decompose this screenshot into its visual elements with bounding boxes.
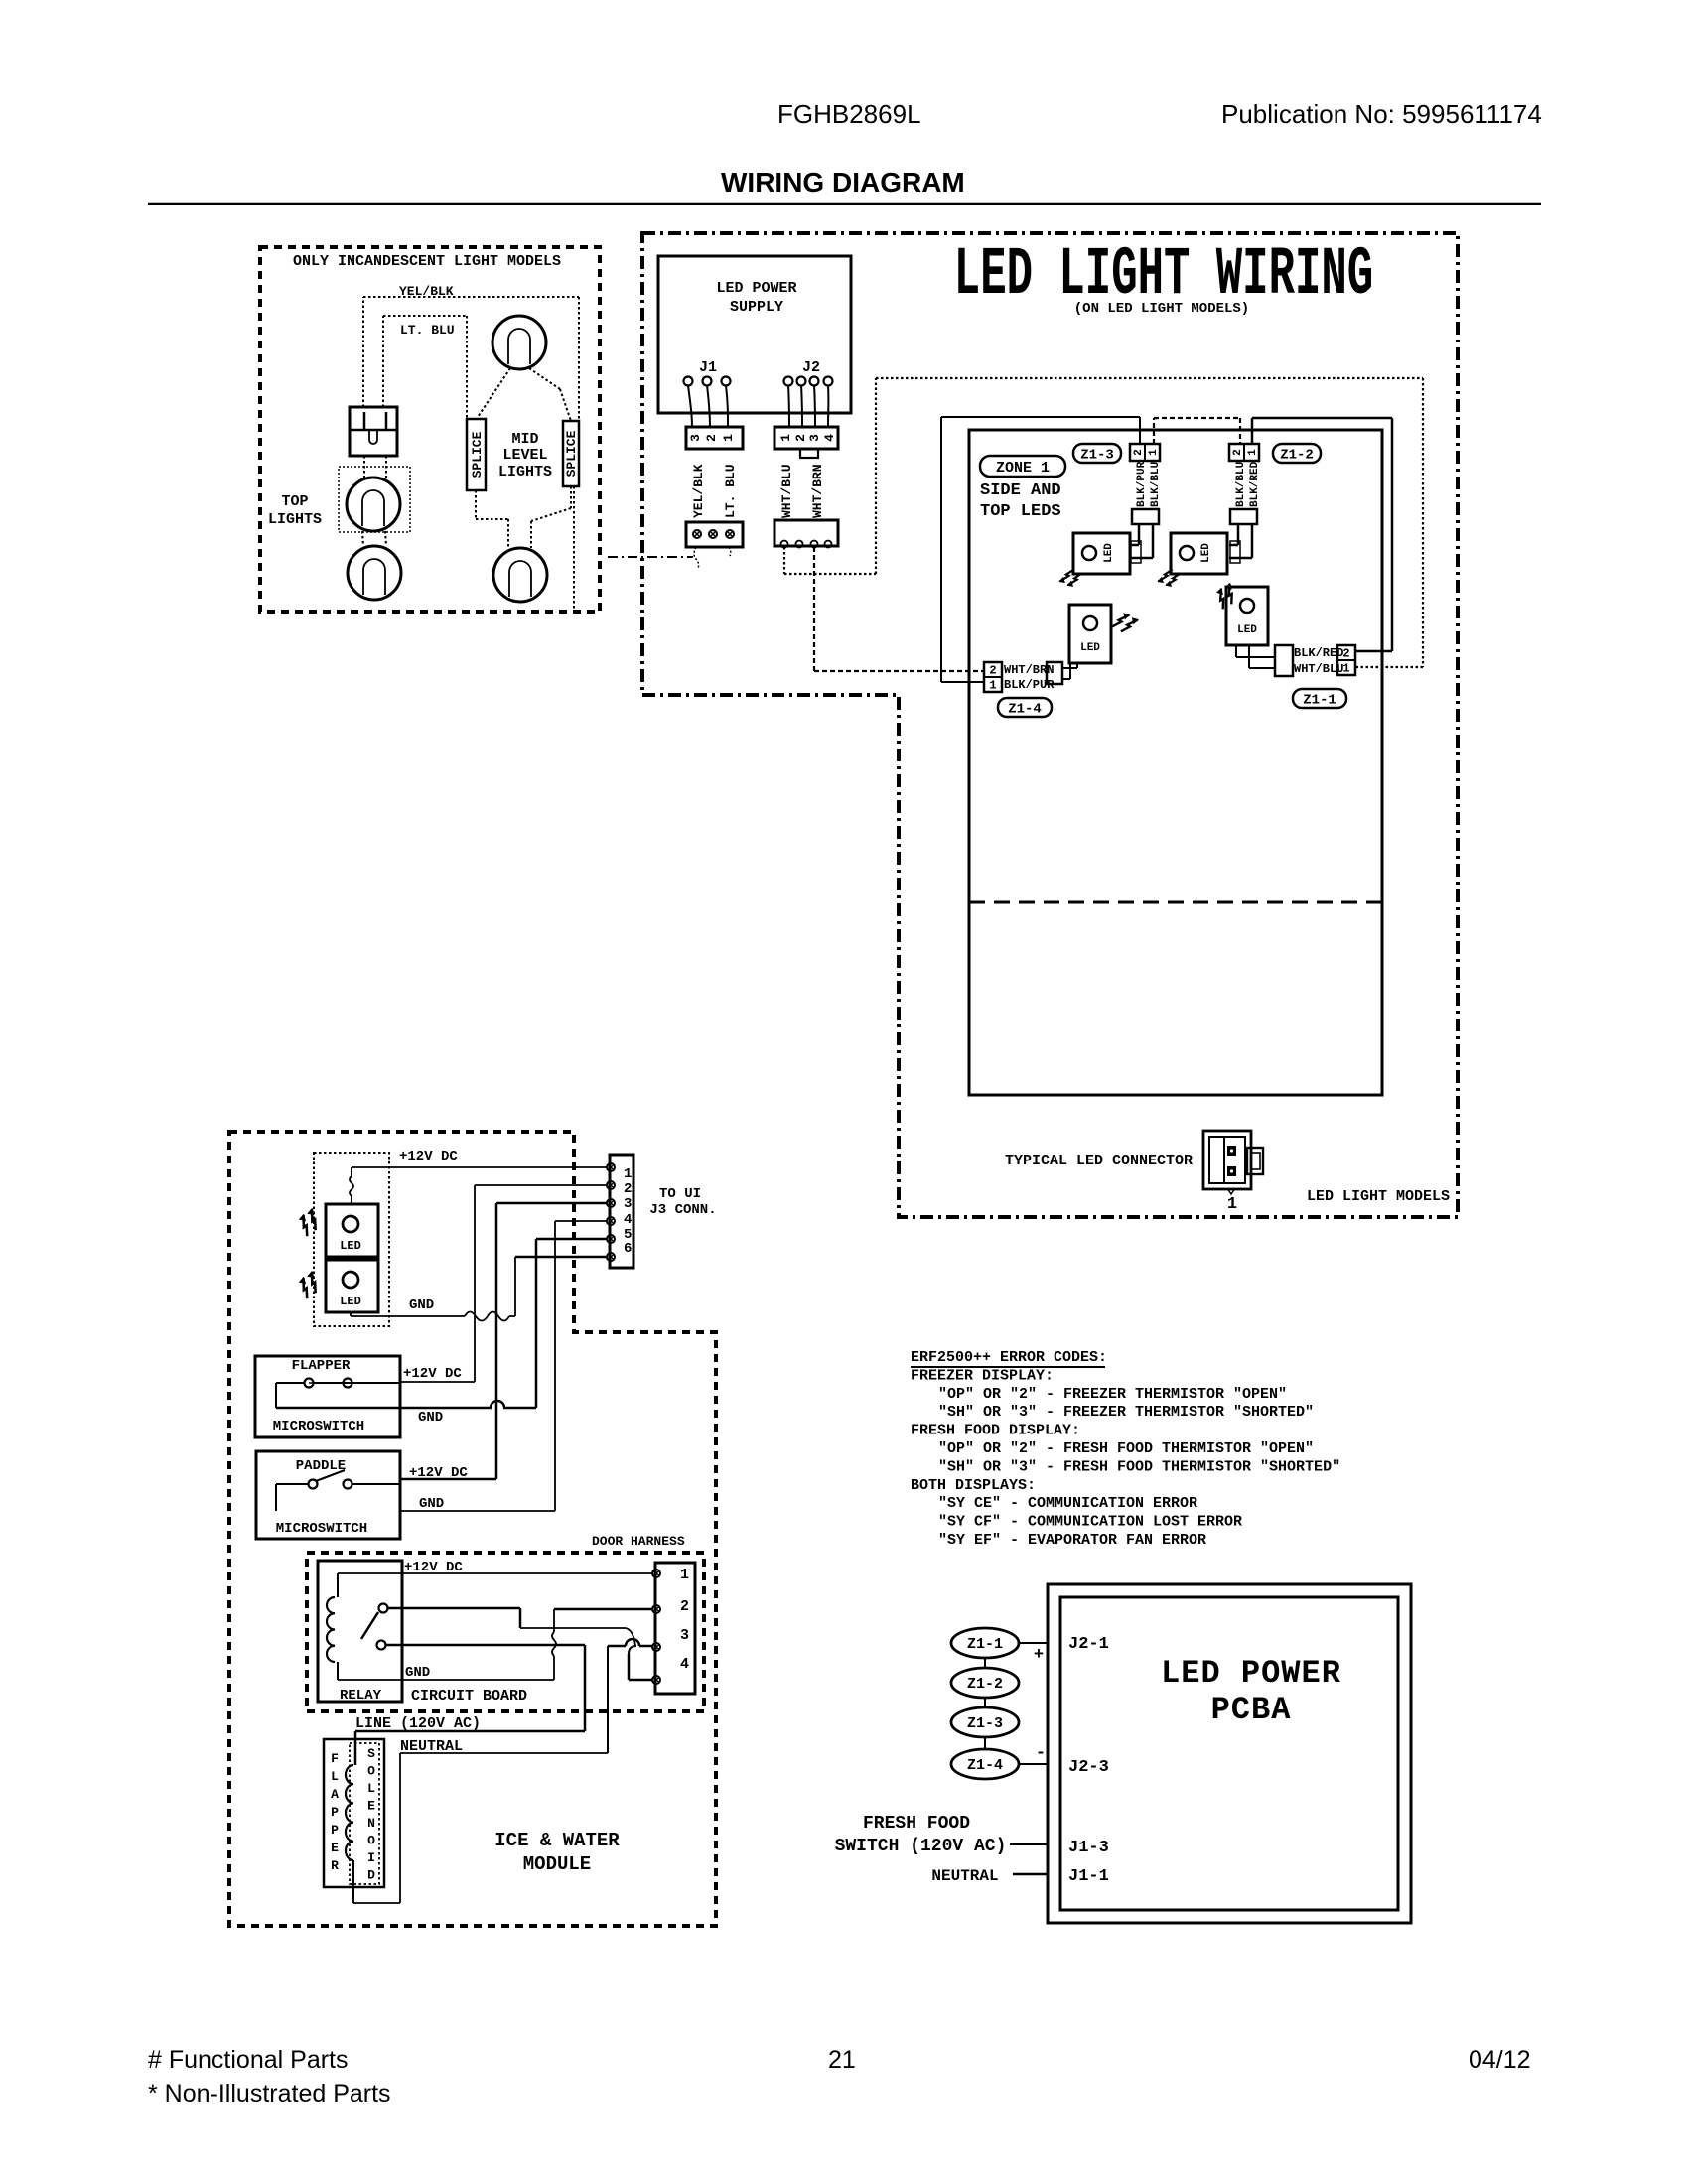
svg-text:Z1-1: Z1-1 (967, 1636, 1003, 1653)
svg-text:GND: GND (405, 1665, 430, 1681)
svg-text:# Functional Parts: # Functional Parts (148, 2046, 349, 2074)
svg-text:WHT/BLU: WHT/BLU (1294, 662, 1343, 676)
svg-text:4: 4 (624, 1212, 632, 1228)
svg-text:4: 4 (680, 1656, 689, 1673)
svg-text:TYPICAL LED CONNECTOR: TYPICAL LED CONNECTOR (1005, 1153, 1193, 1169)
svg-text:+12V DC: +12V DC (409, 1465, 468, 1481)
svg-text:LED: LED (340, 1295, 361, 1308)
svg-text:GND: GND (419, 1496, 444, 1512)
svg-text:LED POWER: LED POWER (1161, 1655, 1341, 1692)
svg-text:2: 2 (793, 434, 808, 442)
svg-text:O: O (367, 1764, 375, 1779)
svg-text:P: P (331, 1805, 339, 1820)
svg-text:YEL/BLK: YEL/BLK (691, 464, 706, 518)
svg-text:Z1-3: Z1-3 (1080, 448, 1114, 464)
svg-text:BOTH DISPLAYS:: BOTH DISPLAYS: (911, 1477, 1036, 1494)
svg-text:-: - (1036, 1744, 1046, 1763)
svg-text:YEL/BLK: YEL/BLK (399, 284, 454, 299)
svg-text:MICROSWITCH: MICROSWITCH (276, 1521, 367, 1537)
svg-text:I: I (367, 1850, 375, 1865)
svg-text:Publication No: 5995611174: Publication No: 5995611174 (1221, 99, 1542, 129)
svg-text:LED: LED (1080, 642, 1100, 654)
svg-text:J2-3: J2-3 (1068, 1758, 1109, 1777)
svg-text:3: 3 (624, 1196, 632, 1212)
svg-text:LED: LED (340, 1239, 361, 1253)
svg-text:1: 1 (1227, 1195, 1237, 1214)
svg-text:R: R (331, 1858, 339, 1873)
svg-text:"SY CE" - COMMUNICATION ERROR: "SY CE" - COMMUNICATION ERROR (938, 1495, 1197, 1512)
svg-text:"OP" OR "2" - FREEZER THERMIST: "OP" OR "2" - FREEZER THERMISTOR "OPEN" (938, 1386, 1287, 1403)
svg-text:1: 1 (624, 1166, 632, 1182)
svg-text:FLAPPER: FLAPPER (292, 1358, 351, 1374)
svg-text:1: 1 (989, 679, 996, 693)
svg-text:LT. BLU: LT. BLU (400, 323, 455, 338)
svg-text:2: 2 (680, 1598, 689, 1615)
svg-text:MICROSWITCH: MICROSWITCH (273, 1419, 364, 1434)
svg-text:PCBA: PCBA (1211, 1692, 1292, 1728)
svg-text:GND: GND (409, 1297, 434, 1313)
svg-text:* Non-Illustrated Parts: * Non-Illustrated Parts (148, 2080, 391, 2108)
svg-text:"SH" OR "3" - FRESH FOOD THERM: "SH" OR "3" - FRESH FOOD THERMISTOR "SHO… (938, 1458, 1340, 1475)
svg-text:NEUTRAL: NEUTRAL (931, 1867, 998, 1885)
svg-text:Z1-2: Z1-2 (1280, 448, 1314, 464)
svg-text:+: + (1034, 1646, 1044, 1665)
svg-text:LT. BLU: LT. BLU (723, 464, 738, 518)
svg-text:ONLY INCANDESCENT LIGHT MODELS: ONLY INCANDESCENT LIGHT MODELS (293, 253, 561, 270)
svg-text:O: O (367, 1834, 375, 1848)
svg-text:J3 CONN.: J3 CONN. (649, 1202, 716, 1218)
svg-text:WHT/BRN: WHT/BRN (1004, 663, 1054, 677)
svg-text:CIRCUIT BOARD: CIRCUIT BOARD (411, 1688, 527, 1705)
svg-text:LED: LED (1237, 624, 1257, 636)
svg-text:FGHB2869L: FGHB2869L (777, 99, 921, 129)
svg-text:FRESH FOOD: FRESH FOOD (863, 1814, 970, 1834)
svg-text:2: 2 (989, 664, 996, 678)
svg-text:TO UI: TO UI (659, 1186, 701, 1202)
svg-text:Z1-1: Z1-1 (1303, 693, 1336, 709)
svg-text:N: N (367, 1816, 375, 1831)
svg-text:2: 2 (624, 1181, 632, 1197)
svg-text:E: E (331, 1841, 339, 1855)
svg-text:ZONE 1: ZONE 1 (996, 460, 1050, 477)
svg-text:WHT/BRN: WHT/BRN (810, 464, 825, 518)
svg-text:Z1-2: Z1-2 (967, 1676, 1003, 1693)
svg-text:RELAY: RELAY (340, 1688, 382, 1704)
svg-text:E: E (367, 1799, 375, 1814)
svg-text:LED: LED (1103, 543, 1115, 563)
svg-text:LEVEL: LEVEL (502, 447, 547, 464)
svg-text:Z1-4: Z1-4 (1008, 702, 1042, 718)
svg-text:J1-1: J1-1 (1068, 1867, 1109, 1886)
svg-text:4: 4 (822, 434, 837, 442)
svg-text:BLK/RED: BLK/RED (1249, 461, 1261, 507)
svg-text:J1: J1 (699, 359, 717, 376)
svg-text:1: 1 (721, 434, 736, 442)
svg-text:SPLICE: SPLICE (470, 431, 485, 478)
svg-text:WHT/BLU: WHT/BLU (779, 464, 794, 518)
svg-text:BLK/RED: BLK/RED (1294, 646, 1343, 660)
svg-text:6: 6 (624, 1241, 632, 1257)
svg-text:21: 21 (828, 2046, 856, 2074)
svg-text:2: 2 (1232, 449, 1244, 456)
svg-text:1: 1 (1247, 449, 1259, 456)
svg-text:LED POWER: LED POWER (716, 280, 796, 297)
svg-text:TOP LEDS: TOP LEDS (980, 502, 1061, 521)
svg-text:"OP" OR "2" - FRESH FOOD THERM: "OP" OR "2" - FRESH FOOD THERMISTOR "OPE… (938, 1440, 1314, 1457)
svg-text:3: 3 (688, 434, 703, 442)
svg-text:WIRING DIAGRAM: WIRING DIAGRAM (721, 167, 965, 198)
svg-text:"SY CF" - COMMUNICATION LOST E: "SY CF" - COMMUNICATION LOST ERROR (938, 1514, 1242, 1531)
svg-text:1: 1 (1148, 449, 1160, 456)
svg-text:LIGHTS: LIGHTS (498, 464, 552, 480)
svg-text:ERF2500++ ERROR CODES:: ERF2500++ ERROR CODES: (911, 1349, 1107, 1366)
svg-text:1: 1 (1342, 662, 1349, 676)
svg-text:J2: J2 (802, 359, 820, 376)
svg-text:LED: LED (1200, 543, 1212, 563)
svg-text:D: D (367, 1868, 375, 1883)
svg-text:FREEZER DISPLAY:: FREEZER DISPLAY: (911, 1367, 1054, 1384)
svg-text:ICE & WATER: ICE & WATER (494, 1830, 620, 1851)
svg-text:04/12: 04/12 (1469, 2046, 1531, 2074)
svg-text:F: F (331, 1751, 339, 1766)
svg-text:2: 2 (704, 434, 719, 442)
svg-text:L: L (331, 1769, 339, 1784)
svg-text:MODULE: MODULE (523, 1853, 591, 1875)
svg-text:P: P (331, 1823, 339, 1838)
svg-text:1: 1 (778, 434, 793, 442)
svg-text:(ON LED LIGHT MODELS): (ON LED LIGHT MODELS) (1074, 301, 1249, 317)
svg-text:GND: GND (418, 1410, 443, 1426)
svg-text:TOP: TOP (281, 493, 308, 510)
svg-text:J1-3: J1-3 (1068, 1839, 1109, 1857)
svg-text:LINE (120V AC): LINE (120V AC) (355, 1715, 481, 1732)
svg-text:L: L (367, 1781, 375, 1796)
svg-text:Z1-3: Z1-3 (967, 1715, 1003, 1732)
svg-text:3: 3 (680, 1627, 689, 1644)
svg-text:Z1-4: Z1-4 (967, 1757, 1003, 1774)
svg-text:BLK/BLU: BLK/BLU (1150, 462, 1162, 507)
svg-text:FRESH FOOD DISPLAY:: FRESH FOOD DISPLAY: (911, 1423, 1080, 1439)
svg-text:+12V DC: +12V DC (403, 1366, 462, 1382)
svg-text:SUPPLY: SUPPLY (730, 299, 783, 316)
svg-text:S: S (367, 1746, 375, 1761)
svg-text:MID: MID (511, 431, 538, 448)
svg-text:DOOR HARNESS: DOOR HARNESS (592, 1534, 685, 1549)
svg-text:"SY EF" - EVAPORATOR FAN ERROR: "SY EF" - EVAPORATOR FAN ERROR (938, 1532, 1206, 1549)
svg-text:1: 1 (680, 1567, 689, 1583)
svg-text:3: 3 (807, 434, 822, 442)
svg-text:LED LIGHT MODELS: LED LIGHT MODELS (1307, 1188, 1450, 1205)
svg-text:BLK/BLU: BLK/BLU (1235, 462, 1247, 507)
svg-text:LIGHTS: LIGHTS (268, 511, 322, 528)
svg-text:BLK/PUR: BLK/PUR (1004, 678, 1055, 692)
svg-text:2: 2 (1133, 449, 1145, 456)
svg-text:BLK/PUR: BLK/PUR (1136, 461, 1148, 507)
svg-text:SIDE AND: SIDE AND (980, 481, 1061, 500)
svg-text:J2-1: J2-1 (1068, 1635, 1109, 1654)
svg-text:"SH" OR "3" - FREEZER THERMIST: "SH" OR "3" - FREEZER THERMISTOR "SHORTE… (938, 1404, 1314, 1421)
svg-text:+12V DC: +12V DC (399, 1149, 458, 1164)
svg-text:2: 2 (1342, 647, 1349, 661)
svg-text:A: A (331, 1787, 339, 1802)
svg-text:SPLICE: SPLICE (564, 430, 579, 477)
svg-text:SWITCH (120V AC): SWITCH (120V AC) (835, 1837, 1007, 1856)
